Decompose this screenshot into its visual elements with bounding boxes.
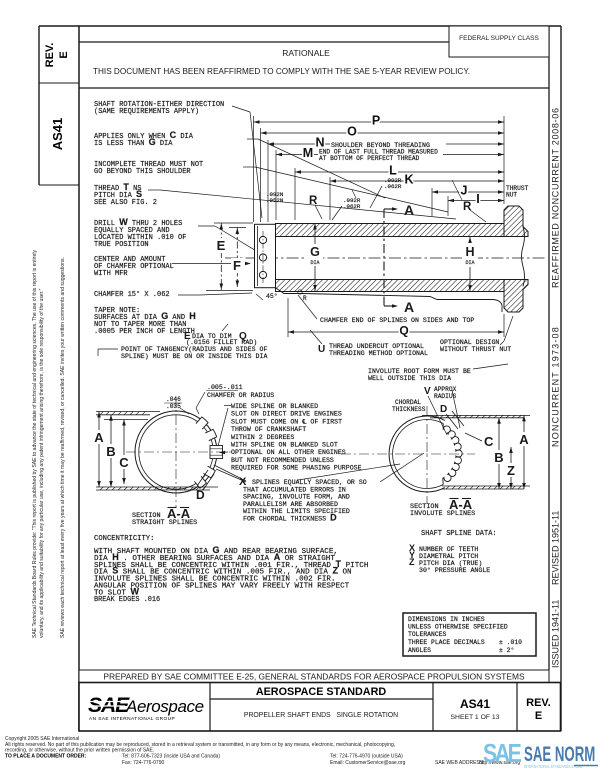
svg-text:SHAFT SPLINE DATA:: SHAFT SPLINE DATA: bbox=[421, 530, 497, 538]
svg-text:(.0156 FILLET RAD): (.0156 FILLET RAD) bbox=[186, 339, 257, 346]
svg-text:CHORDAL: CHORDAL bbox=[395, 399, 421, 406]
svg-text:CHAMFER OR RADIUS: CHAMFER OR RADIUS bbox=[207, 392, 274, 399]
svg-text:REQUIRED FOR SOME PHASING PURP: REQUIRED FOR SOME PHASING PURPOSE bbox=[231, 465, 362, 472]
svg-text:R: R bbox=[309, 195, 318, 207]
svg-text:PARALLELISM ARE ABSORBED: PARALLELISM ARE ABSORBED bbox=[243, 501, 338, 508]
svg-text:K: K bbox=[404, 173, 413, 187]
svg-text:SAE: SAE bbox=[483, 739, 521, 769]
svg-text:AT BOTTOM OF PERFECT THREAD: AT BOTTOM OF PERFECT THREAD bbox=[319, 155, 420, 162]
svg-text:E: E bbox=[58, 51, 70, 58]
svg-text:.052N: .052N bbox=[266, 197, 284, 204]
svg-text:B: B bbox=[106, 444, 115, 459]
svg-text:NUT: NUT bbox=[506, 192, 517, 199]
svg-text:L: L bbox=[389, 164, 397, 178]
svg-text:FEDERAL SUPPLY CLASS: FEDERAL SUPPLY CLASS bbox=[459, 35, 539, 42]
svg-text:INVOLUTE SPLINES: INVOLUTE SPLINES bbox=[410, 510, 475, 518]
svg-text:DIA: DIA bbox=[465, 260, 474, 266]
svg-text:STRAIGHT SPLINES: STRAIGHT SPLINES bbox=[132, 519, 197, 527]
svg-text:O: O bbox=[347, 125, 357, 139]
svg-text:R: R bbox=[463, 201, 472, 213]
svg-text:THICKNESS: THICKNESS bbox=[392, 406, 426, 413]
svg-text:TO PLACE A DOCUMENT ORDER:: TO PLACE A DOCUMENT ORDER: bbox=[5, 754, 87, 760]
svg-text:POINT OF TANGENCY(RADIUS AND S: POINT OF TANGENCY(RADIUS AND SIDES OF bbox=[121, 346, 267, 353]
svg-text:30° PRESSURE ANGLE: 30° PRESSURE ANGLE bbox=[419, 566, 490, 574]
svg-text:ISSUED 1941-11: ISSUED 1941-11 bbox=[551, 600, 561, 668]
svg-text:SLOT ON DIRECT DRIVE ENGINES: SLOT ON DIRECT DRIVE ENGINES bbox=[231, 411, 342, 418]
svg-text:J: J bbox=[461, 184, 468, 198]
svg-text:Aerospace: Aerospace bbox=[125, 697, 204, 716]
svg-text:.046: .046 bbox=[166, 396, 181, 403]
svg-text:NUMBER OF TEETH: NUMBER OF TEETH bbox=[419, 546, 478, 553]
svg-text:B: B bbox=[494, 450, 503, 465]
svg-text:DIAMETRAL PITCH: DIAMETRAL PITCH bbox=[419, 553, 478, 560]
svg-text:PITCH DIA (TRUE): PITCH DIA (TRUE) bbox=[419, 560, 482, 567]
svg-text:SAE Technical Standards Board: SAE Technical Standards Board Rules prov… bbox=[32, 250, 38, 638]
svg-text:REVISED 1951-11: REVISED 1951-11 bbox=[551, 511, 561, 585]
svg-text:± .010: ± .010 bbox=[499, 639, 522, 646]
svg-text:P: P bbox=[372, 114, 380, 128]
svg-text:I: I bbox=[476, 192, 479, 206]
svg-text:V: V bbox=[424, 386, 431, 397]
svg-text:Tel: 724-776-4970 (outside USA: Tel: 724-776-4970 (outside USA) bbox=[330, 754, 403, 760]
svg-text:E: E bbox=[535, 710, 542, 722]
svg-text:A: A bbox=[519, 432, 529, 447]
svg-text:WELL OUTSIDE THIS DIA: WELL OUTSIDE THIS DIA bbox=[368, 375, 451, 382]
svg-text:THREAD UNDERCUT OPTIONAL: THREAD UNDERCUT OPTIONAL bbox=[329, 343, 424, 350]
svg-text:TOLERANCES: TOLERANCES bbox=[408, 631, 447, 638]
svg-text:SHEET 1 OF 13: SHEET 1 OF 13 bbox=[451, 714, 500, 721]
svg-text:SPACING, INVOLUTE FORM, AND: SPACING, INVOLUTE FORM, AND bbox=[243, 494, 350, 501]
svg-text:RATIONALE: RATIONALE bbox=[282, 48, 330, 58]
svg-text:(SAME REQUIREMENTS APPLY): (SAME REQUIREMENTS APPLY) bbox=[94, 108, 199, 116]
svg-text:WITHOUT THRUST NUT: WITHOUT THRUST NUT bbox=[440, 346, 511, 353]
svg-text:.0005 PER INCH OF LENGTH: .0005 PER INCH OF LENGTH bbox=[94, 328, 195, 336]
svg-text:CHAMFER END OF SPLINES ON SIDE: CHAMFER END OF SPLINES ON SIDES AND TOP bbox=[320, 317, 474, 324]
svg-text:F: F bbox=[233, 258, 241, 273]
svg-text:.062R: .062R bbox=[343, 203, 361, 210]
svg-text:AEROSPACE STANDARD: AEROSPACE STANDARD bbox=[256, 686, 387, 698]
svg-text:D: D bbox=[196, 488, 205, 502]
svg-text:U: U bbox=[318, 344, 325, 355]
svg-text:APPROX: APPROX bbox=[434, 386, 457, 393]
svg-text:.005-.011: .005-.011 bbox=[207, 384, 243, 391]
svg-text:CONCENTRICITY:: CONCENTRICITY: bbox=[94, 535, 154, 543]
svg-text:AN SAE INTERNATIONAL GROUP: AN SAE INTERNATIONAL GROUP bbox=[89, 716, 175, 722]
svg-text:WITH SPLINE ON BLANKED SLOT: WITH SPLINE ON BLANKED SLOT bbox=[231, 442, 338, 449]
svg-text:BUT NOT RECOMMENDED UNLESS: BUT NOT RECOMMENDED UNLESS bbox=[231, 457, 334, 464]
svg-text:SAE NORM: SAE NORM bbox=[524, 742, 595, 766]
svg-text:AS41: AS41 bbox=[50, 118, 65, 151]
svg-text:SAE WEB ADDRESS:: SAE WEB ADDRESS: bbox=[435, 760, 484, 766]
svg-text:R: R bbox=[303, 295, 307, 302]
svg-text:G: G bbox=[310, 245, 320, 259]
svg-text:SPLINE) MUST BE ON OR INSIDE T: SPLINE) MUST BE ON OR INSIDE THIS DIA bbox=[121, 353, 267, 360]
svg-text:H: H bbox=[465, 245, 474, 259]
svg-text:OPTIONAL ON ALL OTHER ENGINES: OPTIONAL ON ALL OTHER ENGINES bbox=[231, 449, 346, 456]
svg-text:A: A bbox=[94, 430, 104, 445]
svg-text:.062R: .062R bbox=[384, 183, 402, 190]
svg-text:CHAMFER 15° X .062: CHAMFER 15° X .062 bbox=[94, 290, 170, 299]
svg-text:Z: Z bbox=[507, 463, 515, 478]
svg-text:UNLESS OTHERWISE SPECIFIED: UNLESS OTHERWISE SPECIFIED bbox=[408, 624, 508, 631]
svg-text:THROW OF CRANKSHAFT: THROW OF CRANKSHAFT bbox=[231, 426, 306, 433]
svg-text:voluntary, and its applicabili: voluntary, and its applicability and sui… bbox=[39, 288, 45, 638]
svg-text:M: M bbox=[303, 146, 313, 160]
svg-text:GO BEYOND THIS SHOULDER: GO BEYOND THIS SHOULDER bbox=[94, 168, 191, 176]
svg-text:± 2°: ± 2° bbox=[499, 646, 514, 654]
svg-text:SLOT MUST COME ON ℄ OF FIRST: SLOT MUST COME ON ℄ OF FIRST bbox=[231, 418, 342, 425]
svg-text:A: A bbox=[404, 299, 414, 315]
svg-text:C: C bbox=[484, 434, 494, 449]
svg-text:WITH MFR: WITH MFR bbox=[94, 270, 128, 278]
svg-text:WITHIN 2 DEGREES: WITHIN 2 DEGREES bbox=[231, 434, 294, 441]
svg-text:Tel: 877-606-7323 (inside USA: Tel: 877-606-7323 (inside USA and Canada… bbox=[122, 754, 220, 760]
svg-text:REV.: REV. bbox=[44, 43, 56, 68]
svg-text:C: C bbox=[119, 455, 129, 470]
svg-text:WIDE SPLINE OR BLANKED: WIDE SPLINE OR BLANKED bbox=[231, 403, 318, 410]
svg-text:PROPELLER SHAFT ENDS SINGLE: PROPELLER SHAFT ENDS SINGLE ROTATION bbox=[244, 712, 398, 719]
svg-text:AS41: AS41 bbox=[460, 697, 490, 711]
svg-text:ANGLES: ANGLES bbox=[408, 647, 431, 654]
svg-text:DIMENSIONS IN INCHES: DIMENSIONS IN INCHES bbox=[408, 616, 485, 623]
svg-text:REAFFIRMED NONCURRENT 2008-06: REAFFIRMED NONCURRENT 2008-06 bbox=[551, 107, 561, 288]
svg-text:NONCURRENT 1973-08: NONCURRENT 1973-08 bbox=[551, 326, 561, 447]
svg-text:SPLINES EQUALLY SPACED, OR SO: SPLINES EQUALLY SPACED, OR SO bbox=[252, 479, 367, 486]
svg-text:E: E bbox=[217, 238, 226, 253]
svg-text:SAE reviews each technical rep: SAE reviews each technical report at lea… bbox=[60, 257, 66, 638]
svg-text:OPTIONAL DESIGN: OPTIONAL DESIGN bbox=[440, 339, 499, 346]
svg-text:N: N bbox=[315, 136, 324, 150]
svg-text:TRUE POSITION: TRUE POSITION bbox=[94, 241, 149, 249]
svg-text:REV.: REV. bbox=[526, 697, 551, 709]
svg-text:Fax: 724-776-0790: Fax: 724-776-0790 bbox=[122, 760, 164, 766]
svg-text:Email: CustomerService@sae.org: Email: CustomerService@sae.org bbox=[330, 760, 406, 766]
svg-text:PREPARED BY SAE COMMITTEE E-25: PREPARED BY SAE COMMITTEE E-25, GENERAL … bbox=[103, 672, 525, 682]
svg-text:THREE PLACE DECIMALS: THREE PLACE DECIMALS bbox=[408, 639, 485, 646]
svg-text:45°: 45° bbox=[266, 292, 278, 300]
svg-text:THIS DOCUMENT HAS BEEN REAFFIR: THIS DOCUMENT HAS BEEN REAFFIRMED TO COM… bbox=[93, 67, 470, 76]
svg-text:A: A bbox=[404, 202, 414, 218]
svg-text:THREADING METHOD OPTIONAL: THREADING METHOD OPTIONAL bbox=[329, 350, 428, 357]
svg-text:DIA: DIA bbox=[310, 260, 319, 266]
svg-text:Q: Q bbox=[399, 324, 408, 338]
svg-text:Z: Z bbox=[409, 557, 415, 567]
svg-text:.035: .035 bbox=[166, 403, 181, 410]
svg-text:THAT ACCUMULATED ERRORS IN: THAT ACCUMULATED ERRORS IN bbox=[243, 487, 346, 494]
svg-text:SEE ALSO FIG. 2: SEE ALSO FIG. 2 bbox=[94, 199, 157, 207]
svg-text:INVOLUTE ROOT FORM MUST BE: INVOLUTE ROOT FORM MUST BE bbox=[368, 368, 471, 375]
svg-text:BREAK EDGES .016: BREAK EDGES .016 bbox=[94, 596, 160, 604]
svg-text:D: D bbox=[440, 404, 447, 415]
